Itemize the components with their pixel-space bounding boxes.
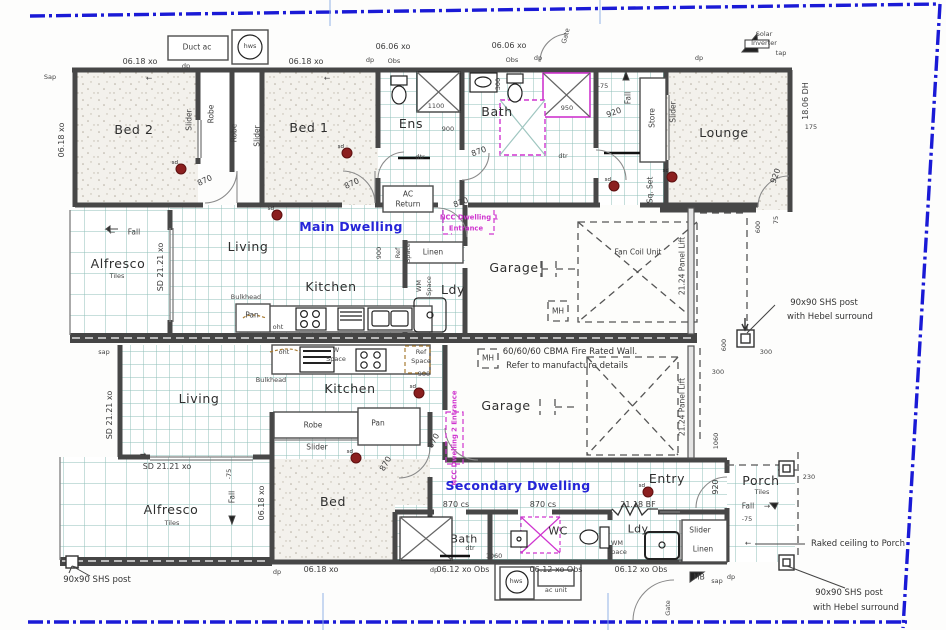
panel-lift-doors [688,208,694,458]
floor-plan-linework [0,0,946,630]
floor-plan-drawing: Duct achws06.18 xodp06.18 xo06.06 xodpOb… [0,0,946,630]
